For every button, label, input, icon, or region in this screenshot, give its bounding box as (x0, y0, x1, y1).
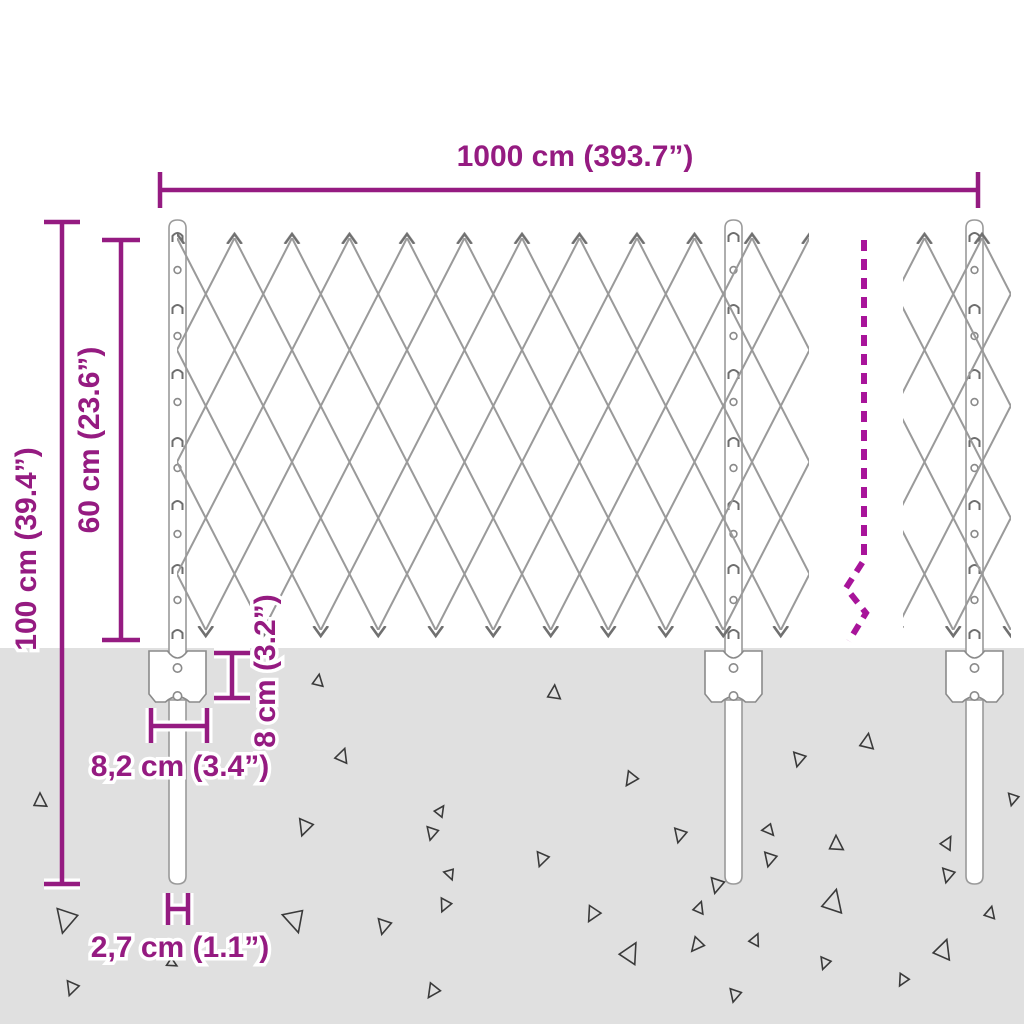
fence-length-label: 1000 cm (393.7”) (457, 140, 694, 173)
anchor-width-label: 8,2 cm (3.4”) (91, 750, 269, 783)
anchor-height-label: 8 cm (3.2”) (249, 594, 282, 747)
mesh-height-label: 60 cm (23.6”) (73, 347, 106, 534)
dimension-mesh-height: 60 cm (23.6”) (73, 240, 140, 640)
dimension-fence-length: 1000 cm (393.7”) (160, 140, 978, 208)
post-total-height-label: 100 cm (39.4”) (10, 447, 43, 650)
length-break-line (846, 240, 866, 641)
ground (0, 648, 1024, 1024)
post-diameter-label: 2,7 cm (1.1”) (91, 931, 269, 964)
mesh-top-hooks (903, 231, 1011, 244)
fence-diagram-svg: 1000 cm (393.7”) 100 cm (39.4”) 60 cm (2… (0, 0, 1024, 1024)
mesh-top-hooks (177, 231, 809, 244)
mesh-panel-right (903, 238, 1011, 630)
mesh-bottom-hooks (903, 626, 1011, 639)
chain-link-mesh (177, 231, 1011, 639)
mesh-panel-main (177, 238, 809, 630)
product-dimension-diagram: 1000 cm (393.7”) 100 cm (39.4”) 60 cm (2… (0, 0, 1024, 1024)
